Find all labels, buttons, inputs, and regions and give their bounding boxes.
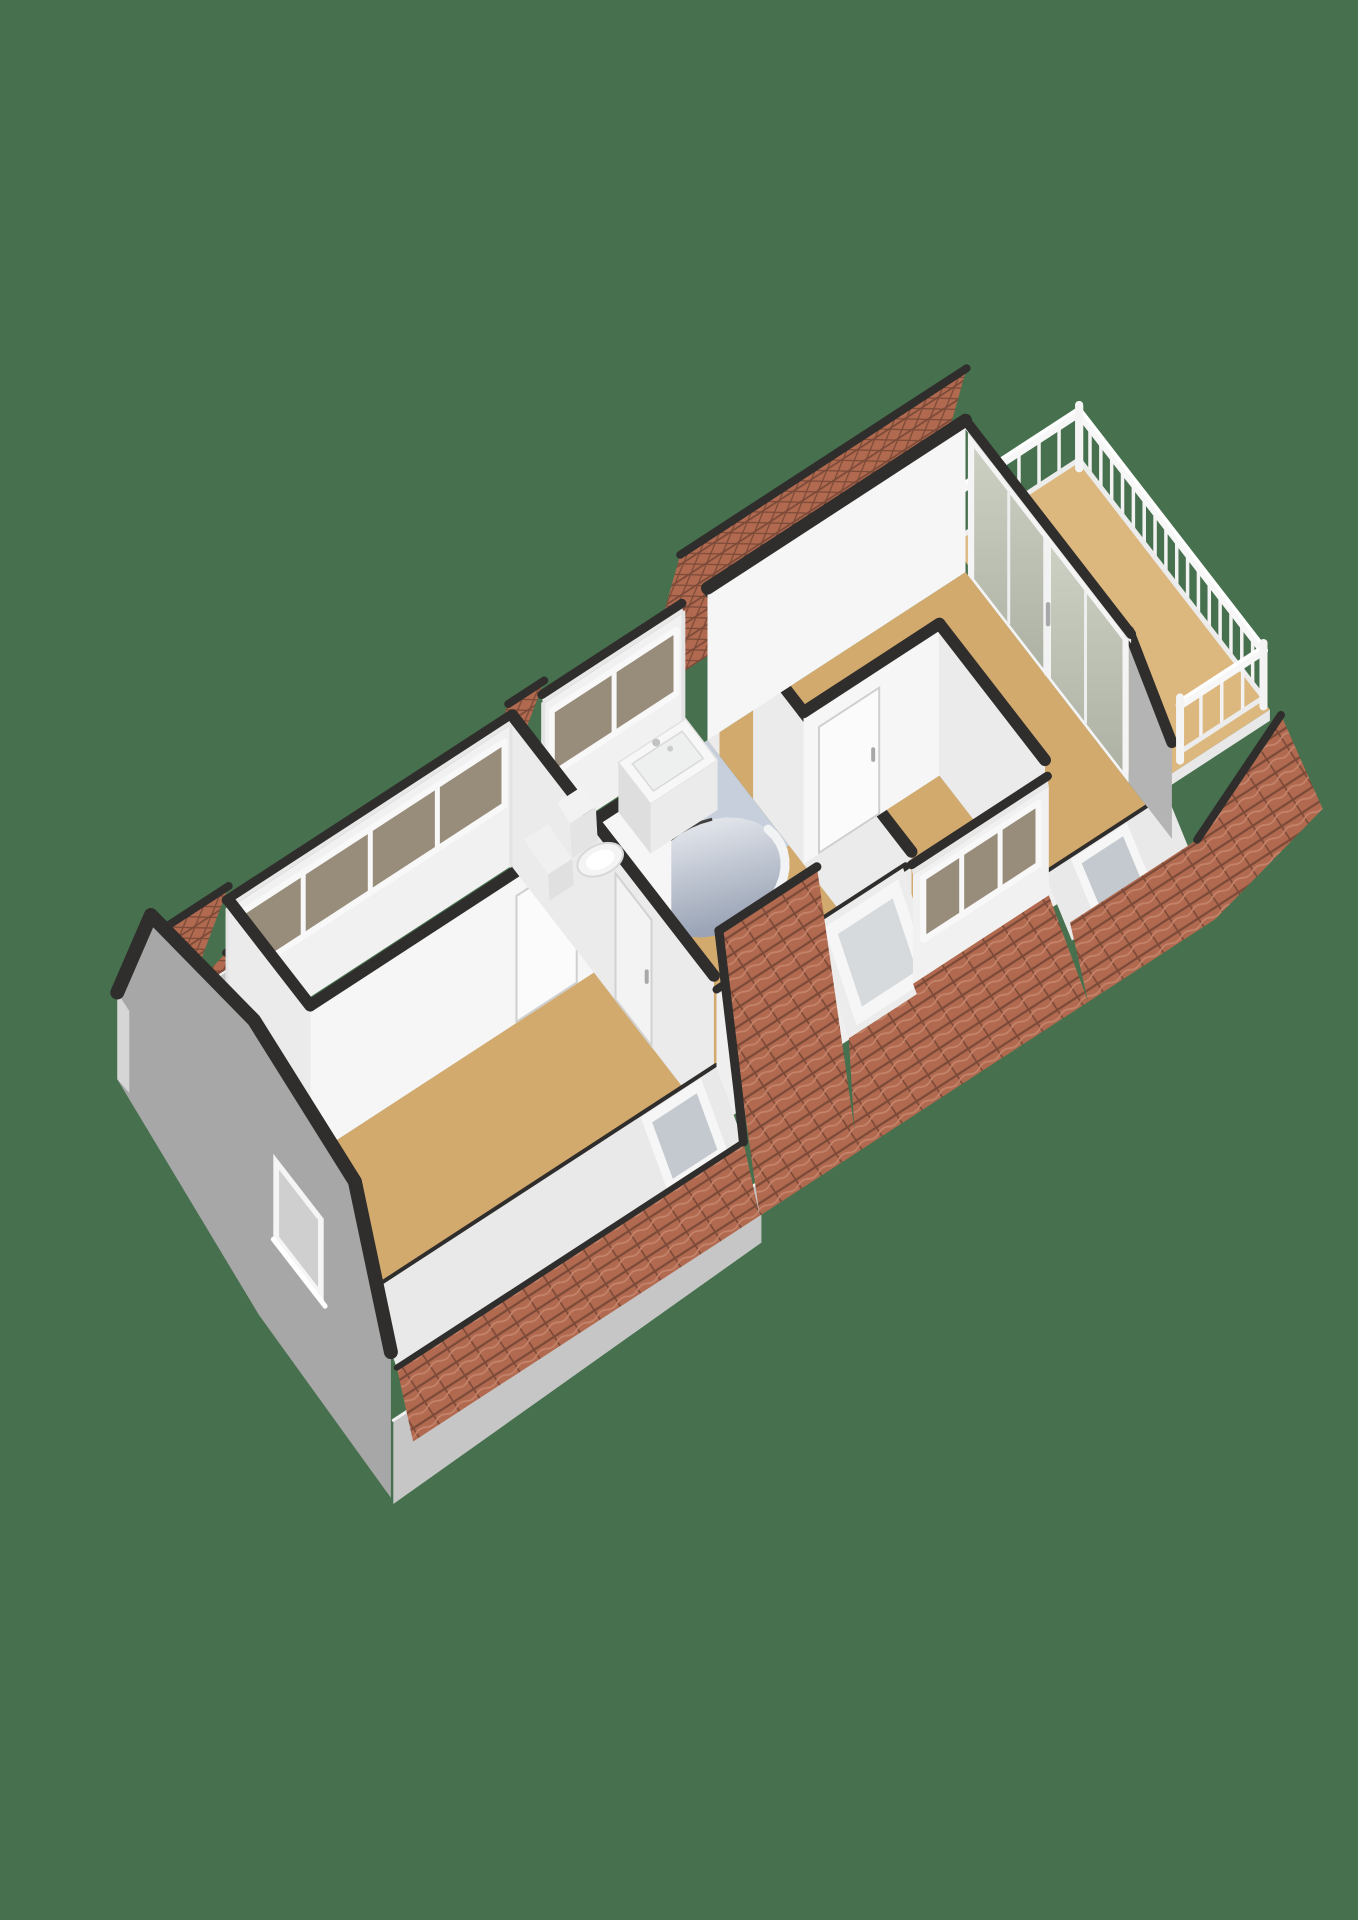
floorplan-canvas (0, 0, 1358, 1920)
floorplan-3d-render (0, 0, 1358, 1920)
